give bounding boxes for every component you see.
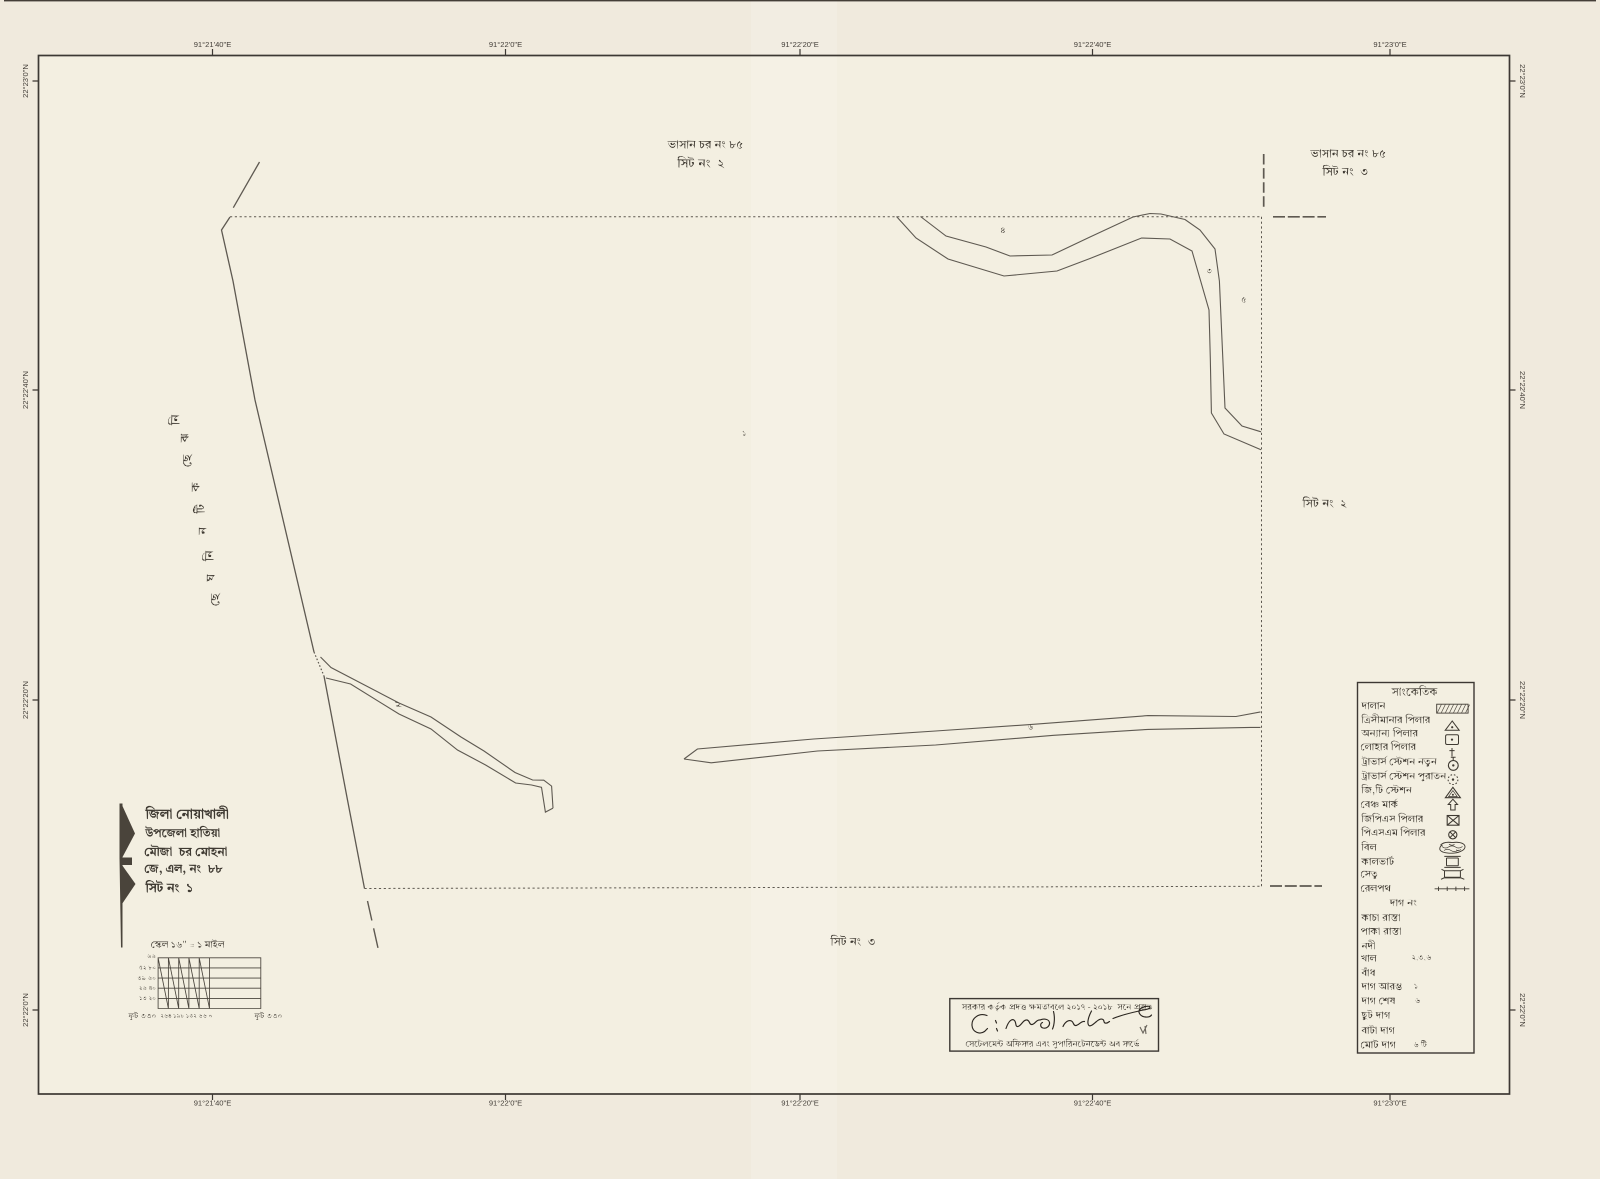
svg-text:91°22'20"E: 91°22'20"E bbox=[781, 40, 819, 49]
svg-text:91°22'0"E: 91°22'0"E bbox=[489, 1099, 522, 1108]
svg-text:22°22'0"N: 22°22'0"N bbox=[21, 993, 30, 1027]
svg-text:22°23'0"N: 22°23'0"N bbox=[1518, 64, 1527, 98]
svg-text:22°22'40"N: 22°22'40"N bbox=[1518, 371, 1527, 409]
svg-text:22°22'40"N: 22°22'40"N bbox=[21, 371, 30, 409]
svg-text:22°22'20"N: 22°22'20"N bbox=[21, 681, 30, 719]
svg-text:91°23'0"E: 91°23'0"E bbox=[1373, 40, 1406, 49]
svg-text:91°21'40"E: 91°21'40"E bbox=[194, 40, 232, 49]
svg-text:91°22'0"E: 91°22'0"E bbox=[489, 40, 522, 49]
svg-text:91°22'40"E: 91°22'40"E bbox=[1074, 40, 1112, 49]
svg-text:22°23'0"N: 22°23'0"N bbox=[21, 64, 30, 98]
svg-text:22°22'0"N: 22°22'0"N bbox=[1518, 993, 1527, 1027]
svg-text:91°23'0"E: 91°23'0"E bbox=[1373, 1099, 1406, 1108]
svg-text:22°22'20"N: 22°22'20"N bbox=[1518, 681, 1527, 719]
svg-text:91°22'20"E: 91°22'20"E bbox=[781, 1099, 819, 1108]
svg-text:91°22'40"E: 91°22'40"E bbox=[1074, 1099, 1112, 1108]
svg-text:91°21'40"E: 91°21'40"E bbox=[194, 1099, 232, 1108]
